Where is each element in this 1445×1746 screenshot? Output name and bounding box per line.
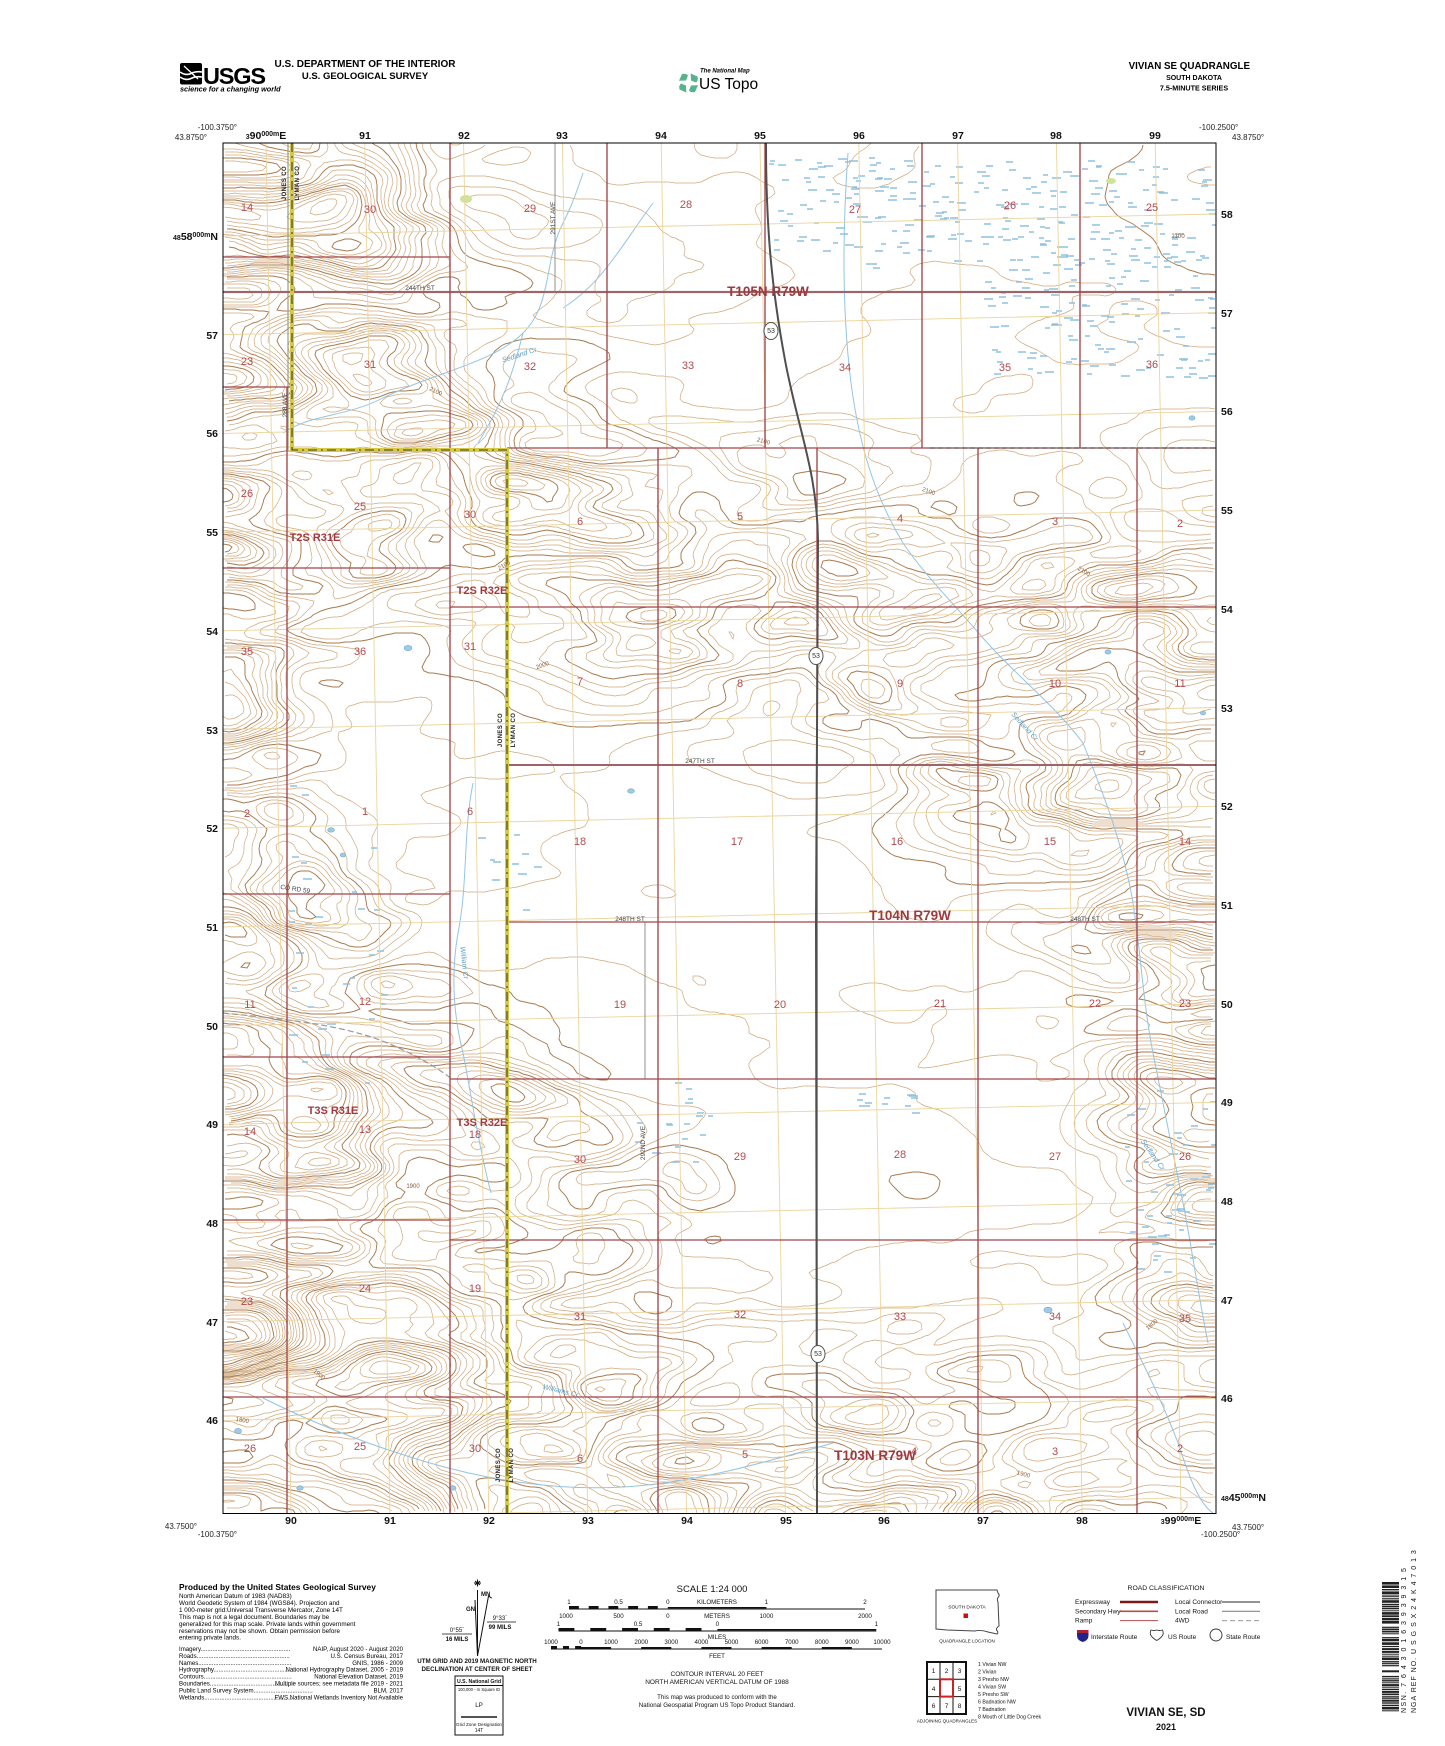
svg-text:53: 53	[814, 1351, 822, 1358]
svg-text:6: 6	[577, 1453, 583, 1465]
svg-text:95: 95	[780, 1515, 792, 1527]
svg-text:34: 34	[1049, 1311, 1061, 1323]
svg-text:SCALE 1:24 000: SCALE 1:24 000	[677, 1584, 748, 1595]
svg-text:292ND AVE: 292ND AVE	[640, 1125, 647, 1160]
svg-text:1: 1	[362, 806, 368, 818]
svg-text:17: 17	[731, 836, 743, 848]
svg-text:1 Vivian NW: 1 Vivian NW	[978, 1662, 1007, 1668]
svg-text:SOUTH DAKOTA: SOUTH DAKOTA	[948, 1605, 986, 1611]
svg-text:43.7500°: 43.7500°	[165, 1522, 197, 1531]
svg-text:T105N R79W: T105N R79W	[727, 284, 809, 299]
svg-text:14T: 14T	[475, 1728, 484, 1734]
svg-text:2: 2	[1177, 518, 1183, 530]
svg-text:53: 53	[812, 653, 820, 660]
svg-text:23: 23	[241, 1296, 253, 1308]
svg-text:25: 25	[354, 1441, 366, 1453]
svg-text:15: 15	[1044, 836, 1056, 848]
svg-text:53: 53	[1221, 703, 1233, 715]
svg-text:T2S R32E: T2S R32E	[457, 585, 508, 597]
svg-text:0: 0	[579, 1639, 583, 1646]
svg-text:T104N R79W: T104N R79W	[869, 908, 951, 923]
svg-text:25: 25	[1146, 202, 1158, 214]
svg-text:4WD: 4WD	[1175, 1618, 1190, 1625]
svg-text:25: 25	[354, 501, 366, 513]
svg-text:96: 96	[878, 1515, 890, 1527]
svg-text:ADJOINING QUADRANGLES: ADJOINING QUADRANGLES	[917, 1719, 977, 1724]
svg-text:9°33´: 9°33´	[493, 1616, 507, 1622]
svg-text:35: 35	[999, 362, 1011, 374]
svg-text:47: 47	[1221, 1295, 1233, 1307]
svg-text:1000: 1000	[604, 1639, 618, 1646]
svg-text:43.8750°: 43.8750°	[175, 133, 207, 142]
svg-text:LYMAN CO: LYMAN CO	[509, 1448, 515, 1483]
svg-text:16: 16	[891, 836, 903, 848]
svg-text:16 MILS: 16 MILS	[446, 1637, 469, 1643]
svg-text:0: 0	[666, 1599, 670, 1606]
svg-text:T3S R32E: T3S R32E	[457, 1117, 508, 1129]
svg-text:LP: LP	[475, 1702, 483, 1709]
svg-text:56: 56	[1221, 406, 1233, 418]
svg-text:27: 27	[849, 204, 861, 216]
svg-text:26: 26	[1004, 200, 1016, 212]
svg-text:2: 2	[863, 1599, 867, 1606]
svg-text:-100.3750°: -100.3750°	[198, 1530, 237, 1539]
svg-text:T103N R79W: T103N R79W	[834, 1448, 916, 1463]
svg-text:54: 54	[1221, 604, 1233, 616]
svg-text:18: 18	[469, 1129, 481, 1141]
svg-text:288 AVE: 288 AVE	[282, 392, 289, 417]
svg-text:23: 23	[241, 356, 253, 368]
svg-text:93: 93	[582, 1515, 594, 1527]
svg-text:METERS: METERS	[704, 1613, 730, 1620]
svg-text:2021: 2021	[1156, 1722, 1176, 1732]
svg-text:53: 53	[206, 725, 218, 737]
svg-text:2: 2	[1177, 1443, 1183, 1455]
svg-text:58: 58	[1221, 209, 1233, 221]
svg-text:NORTH AMERICAN VERTICAL DATUM: NORTH AMERICAN VERTICAL DATUM OF 1988	[645, 1679, 789, 1686]
svg-text:1000: 1000	[559, 1613, 573, 1620]
svg-text:VIVIAN SE QUADRANGLE: VIVIAN SE QUADRANGLE	[1129, 61, 1251, 72]
svg-text:Expressway: Expressway	[1075, 1599, 1111, 1606]
svg-text:51: 51	[206, 922, 218, 934]
svg-text:8000: 8000	[815, 1639, 829, 1646]
svg-text:11: 11	[1174, 678, 1185, 690]
svg-text:31: 31	[464, 641, 476, 653]
svg-text:33: 33	[682, 360, 694, 372]
svg-text:-100.2500°: -100.2500°	[1199, 123, 1238, 132]
svg-text:US Route: US Route	[1168, 1634, 1197, 1641]
svg-text:8: 8	[737, 678, 743, 690]
svg-text:48: 48	[206, 1218, 218, 1230]
svg-text:1: 1	[567, 1599, 571, 1606]
svg-text:2100: 2100	[1171, 234, 1185, 240]
svg-text:94: 94	[681, 1515, 693, 1527]
svg-text:91: 91	[359, 130, 371, 142]
svg-text:2000: 2000	[858, 1613, 872, 1620]
svg-text:33: 33	[894, 1311, 906, 1323]
svg-text:3 Presho NW: 3 Presho NW	[978, 1677, 1009, 1683]
svg-text:National Geospatial Program US: National Geospatial Program US Topo Prod…	[639, 1702, 796, 1709]
svg-text:0°55´: 0°55´	[450, 1628, 464, 1634]
svg-text:29: 29	[734, 1151, 746, 1163]
svg-text:29: 29	[524, 203, 536, 215]
svg-text:32: 32	[734, 1309, 746, 1321]
svg-text:99 MILS: 99 MILS	[489, 1625, 512, 1631]
svg-text:97: 97	[952, 130, 964, 142]
svg-text:56: 56	[206, 428, 218, 440]
svg-text:247TH ST: 247TH ST	[685, 758, 715, 765]
svg-text:entering private lands.: entering private lands.	[179, 1635, 241, 1642]
svg-text:GN: GN	[466, 1607, 475, 1613]
svg-text:4: 4	[932, 1686, 936, 1693]
svg-text:94: 94	[655, 130, 667, 142]
svg-text:3000: 3000	[664, 1639, 678, 1646]
svg-text:20: 20	[774, 999, 786, 1011]
svg-text:Interstate Route: Interstate Route	[1091, 1634, 1138, 1641]
svg-text:U.S. National Grid: U.S. National Grid	[457, 1679, 501, 1685]
svg-text:science for a changing world: science for a changing world	[180, 85, 281, 94]
svg-text:23: 23	[1179, 998, 1191, 1010]
svg-text:28: 28	[680, 199, 692, 211]
svg-text:-100.3750°: -100.3750°	[198, 123, 237, 132]
svg-text:95: 95	[754, 130, 766, 142]
svg-text:8: 8	[958, 1703, 962, 1710]
svg-text:5 Presho SW: 5 Presho SW	[978, 1692, 1009, 1698]
svg-text:3: 3	[958, 1668, 962, 1675]
svg-text:0.5: 0.5	[634, 1621, 643, 1628]
svg-text:36: 36	[1146, 359, 1158, 371]
svg-text:1: 1	[557, 1621, 561, 1628]
svg-text:97: 97	[977, 1515, 989, 1527]
svg-text:500: 500	[613, 1613, 624, 1620]
svg-text:Grid Zone Designation: Grid Zone Designation	[456, 1722, 502, 1727]
svg-text:7.5-MINUTE SERIES: 7.5-MINUTE SERIES	[1160, 84, 1229, 93]
svg-text:6000: 6000	[755, 1639, 769, 1646]
svg-text:1000: 1000	[544, 1639, 558, 1646]
svg-text:8 Mouth of Little Dog Creek: 8 Mouth of Little Dog Creek	[978, 1715, 1042, 1721]
svg-text:7000: 7000	[785, 1639, 799, 1646]
svg-text:T3S R31E: T3S R31E	[308, 1105, 359, 1117]
svg-text:Local Road: Local Road	[1175, 1608, 1208, 1615]
svg-text:2: 2	[945, 1668, 949, 1675]
svg-text:19: 19	[614, 999, 626, 1011]
svg-text:MILES: MILES	[708, 1634, 727, 1641]
svg-text:MN: MN	[481, 1592, 490, 1598]
svg-text:7: 7	[945, 1703, 949, 1710]
svg-text:2: 2	[244, 808, 250, 820]
svg-text:47: 47	[206, 1317, 218, 1329]
svg-text:Produced by the United States: Produced by the United States Geological…	[179, 1582, 376, 1592]
svg-text:2 Vivian: 2 Vivian	[978, 1670, 996, 1676]
svg-text:7 Badnation: 7 Badnation	[978, 1707, 1006, 1713]
svg-text:93: 93	[556, 130, 568, 142]
svg-text:QUADRANGLE LOCATION: QUADRANGLE LOCATION	[939, 1639, 994, 1644]
svg-text:36: 36	[354, 646, 366, 658]
svg-text:5: 5	[737, 511, 743, 523]
svg-text:51: 51	[1221, 900, 1233, 912]
svg-text:244TH ST: 244TH ST	[405, 285, 435, 292]
svg-text:1: 1	[932, 1668, 936, 1675]
svg-text:Secondary Hwy: Secondary Hwy	[1075, 1608, 1121, 1615]
svg-text:0: 0	[716, 1621, 720, 1628]
svg-text:SOUTH DAKOTA: SOUTH DAKOTA	[1166, 75, 1222, 82]
svg-text:LYMAN CO: LYMAN CO	[511, 713, 517, 748]
svg-text:U.S. GEOLOGICAL SURVEY: U.S. GEOLOGICAL SURVEY	[302, 71, 429, 82]
svg-text:CONTOUR INTERVAL 20 FEET: CONTOUR INTERVAL 20 FEET	[671, 1671, 764, 1678]
svg-text:JONES CO: JONES CO	[282, 166, 288, 200]
svg-text:10000: 10000	[873, 1639, 891, 1646]
svg-text:4: 4	[897, 513, 903, 525]
svg-text:Local Connector: Local Connector	[1175, 1599, 1223, 1606]
svg-text:57: 57	[1221, 308, 1233, 320]
svg-text:6: 6	[577, 516, 583, 528]
svg-text:3: 3	[1052, 516, 1058, 528]
svg-text:LYMAN CO: LYMAN CO	[295, 166, 301, 201]
svg-text:27: 27	[1049, 1151, 1061, 1163]
svg-text:26: 26	[244, 1443, 256, 1455]
svg-text:19: 19	[469, 1283, 481, 1295]
svg-text:31: 31	[574, 1311, 586, 1323]
svg-text:91: 91	[384, 1515, 396, 1527]
svg-text:28: 28	[894, 1149, 906, 1161]
svg-text:26: 26	[241, 488, 253, 500]
svg-text:52: 52	[206, 823, 218, 835]
svg-text:30: 30	[364, 204, 376, 216]
svg-text:90: 90	[285, 1515, 297, 1527]
svg-text:US Topo: US Topo	[699, 76, 758, 93]
svg-text:9000: 9000	[845, 1639, 859, 1646]
svg-text:55: 55	[206, 527, 218, 539]
svg-text:18: 18	[574, 836, 586, 848]
svg-text:14: 14	[1179, 836, 1191, 848]
svg-text:30: 30	[574, 1154, 586, 1166]
svg-text:248TH ST: 248TH ST	[1070, 916, 1100, 923]
svg-text:10: 10	[1049, 678, 1061, 690]
svg-text:5: 5	[742, 1449, 748, 1461]
svg-text:-100.2500°: -100.2500°	[1201, 1530, 1240, 1539]
svg-text:14: 14	[241, 202, 253, 214]
svg-text:34: 34	[839, 362, 851, 374]
svg-text:26: 26	[1179, 1151, 1191, 1163]
svg-text:FEET: FEET	[709, 1653, 725, 1660]
svg-text:JONES CO: JONES CO	[496, 1448, 502, 1482]
svg-text:1: 1	[765, 1599, 769, 1606]
svg-text:21: 21	[934, 998, 946, 1010]
svg-text:22: 22	[1089, 998, 1101, 1010]
svg-text:The National Map: The National Map	[700, 69, 750, 75]
svg-text:6: 6	[932, 1703, 936, 1710]
svg-text:ROAD CLASSIFICATION: ROAD CLASSIFICATION	[1128, 1585, 1205, 1592]
svg-text:248TH ST: 248TH ST	[615, 916, 645, 923]
svg-text:92: 92	[458, 130, 470, 142]
svg-text:54: 54	[206, 626, 218, 638]
svg-text:50: 50	[1221, 999, 1233, 1011]
svg-text:57: 57	[206, 330, 218, 342]
svg-text:0.5: 0.5	[614, 1599, 623, 1606]
svg-text:46: 46	[206, 1415, 218, 1427]
svg-text:6 Badnation NW: 6 Badnation NW	[978, 1700, 1016, 1706]
svg-text:43.8750°: 43.8750°	[1232, 133, 1264, 142]
svg-text:NSN. 7 6 4 3 0 1 6 3 9 3 9 3: NSN. 7 6 4 3 0 1 6 3 9 3 9 3 1 5	[1401, 1567, 1408, 1713]
svg-text:3: 3	[1052, 1446, 1058, 1458]
svg-text:35: 35	[241, 646, 253, 658]
svg-text:JONES CO: JONES CO	[498, 713, 504, 747]
svg-text:24: 24	[359, 1283, 371, 1295]
svg-text:4 Vivian SW: 4 Vivian SW	[978, 1685, 1006, 1691]
svg-text:49: 49	[206, 1119, 218, 1131]
svg-text:NGA REF NO. U S G S X 2 4 K 4: NGA REF NO. U S G S X 2 4 K 4 7 0 1 3	[1411, 1549, 1418, 1713]
svg-text:9: 9	[897, 678, 903, 690]
svg-text:4000: 4000	[695, 1639, 709, 1646]
svg-text:52: 52	[1221, 801, 1233, 813]
svg-text:KILOMETERS: KILOMETERS	[697, 1599, 737, 1606]
svg-text:2000: 2000	[634, 1639, 648, 1646]
svg-text:This map was produced to confo: This map was produced to conform with th…	[657, 1694, 777, 1701]
svg-text:98: 98	[1050, 130, 1062, 142]
svg-text:UTM GRID AND 2019 MAGNETIC NOR: UTM GRID AND 2019 MAGNETIC NORTH	[417, 1658, 537, 1665]
svg-text:U.S. DEPARTMENT OF THE INTERIO: U.S. DEPARTMENT OF THE INTERIOR	[275, 59, 457, 70]
svg-text:14: 14	[244, 1126, 256, 1138]
svg-text:35: 35	[1179, 1313, 1191, 1325]
svg-text:T2S R31E: T2S R31E	[290, 532, 341, 544]
svg-text:48: 48	[1221, 1196, 1233, 1208]
svg-text:31: 31	[364, 359, 376, 371]
svg-text:DECLINATION AT CENTER OF SHEET: DECLINATION AT CENTER OF SHEET	[422, 1666, 533, 1673]
svg-text:1000: 1000	[760, 1613, 774, 1620]
svg-text:291ST AVE: 291ST AVE	[550, 201, 557, 235]
svg-text:FWS National Wetlands Inventor: FWS National Wetlands Inventory Not Avai…	[275, 1694, 404, 1701]
svg-text:92: 92	[483, 1515, 495, 1527]
svg-text:13: 13	[359, 1124, 371, 1136]
svg-text:11: 11	[244, 999, 255, 1011]
svg-text:100,000 - m Square ID: 100,000 - m Square ID	[458, 1687, 500, 1692]
svg-text:96: 96	[853, 130, 865, 142]
svg-text:49: 49	[1221, 1097, 1233, 1109]
svg-text:7: 7	[577, 676, 583, 688]
svg-text:55: 55	[1221, 505, 1233, 517]
svg-text:12: 12	[359, 996, 371, 1008]
svg-text:State Route: State Route	[1226, 1634, 1261, 1641]
svg-text:5: 5	[958, 1686, 962, 1693]
svg-text:99: 99	[1149, 130, 1161, 142]
svg-text:46: 46	[1221, 1393, 1233, 1405]
svg-text:1: 1	[875, 1621, 879, 1628]
svg-text:6: 6	[467, 806, 473, 818]
svg-text:32: 32	[524, 361, 536, 373]
svg-text:0: 0	[666, 1613, 670, 1620]
svg-text:1900: 1900	[406, 1184, 420, 1190]
svg-text:Ramp: Ramp	[1075, 1618, 1093, 1625]
svg-text:30: 30	[469, 1443, 481, 1455]
svg-text:VIVIAN SE, SD: VIVIAN SE, SD	[1126, 1707, 1205, 1719]
svg-text:98: 98	[1076, 1515, 1088, 1527]
svg-text:53: 53	[767, 328, 775, 335]
svg-text:30: 30	[464, 509, 476, 521]
svg-text:5000: 5000	[725, 1639, 739, 1646]
svg-text:1 000-meter grid:Universal Tra: 1 000-meter grid:Universal Transverse Me…	[179, 1607, 343, 1614]
svg-text:50: 50	[206, 1021, 218, 1033]
